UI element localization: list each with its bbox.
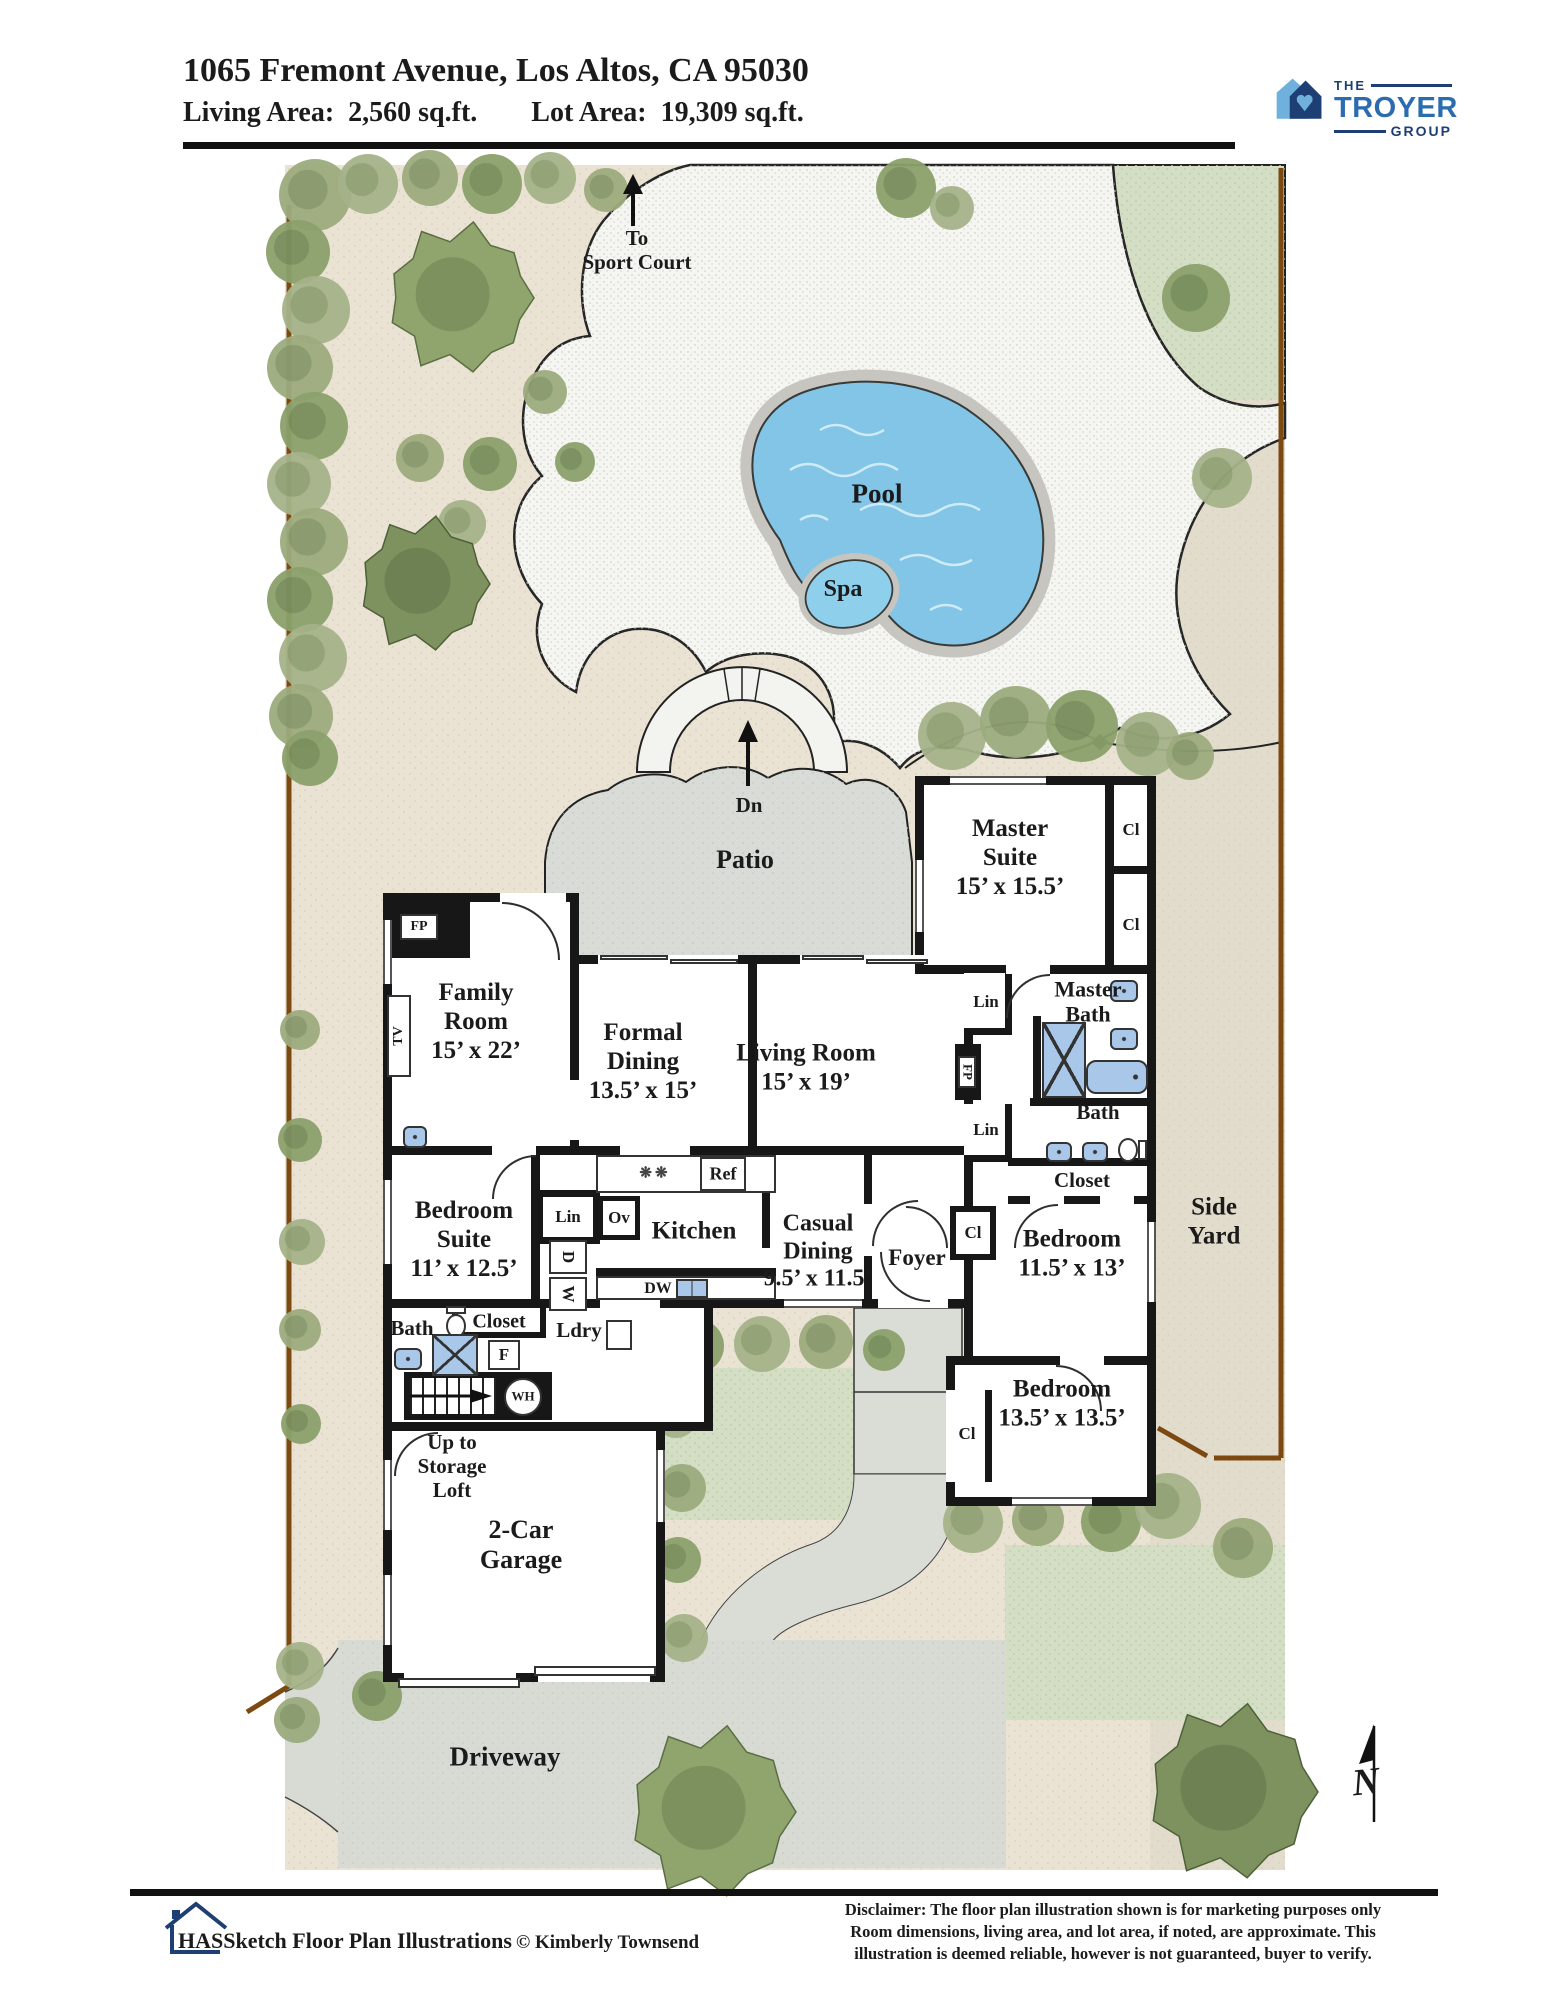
living-room-label: Living Room 15’ x 19’ <box>736 1039 876 1097</box>
logo-troyer: TROYER <box>1334 93 1452 123</box>
fireplace-label: FP <box>960 1064 975 1080</box>
closet-label: Cl <box>1123 915 1140 935</box>
linen-label: Lin <box>973 992 999 1012</box>
side-yard-label: Side Yard <box>1188 1193 1241 1251</box>
sink-icon <box>1046 1142 1072 1162</box>
oven-label: Ov <box>608 1208 630 1228</box>
dryer-label: D <box>558 1251 578 1263</box>
window <box>1012 1497 1092 1506</box>
down-label: Dn <box>736 793 763 817</box>
bedroom-2-label: Bedroom 13.5’ x 13.5’ <box>998 1375 1125 1433</box>
logo-group: GROUP <box>1391 123 1452 139</box>
washer-label: W <box>558 1286 578 1303</box>
linen-label: Lin <box>973 1120 999 1140</box>
header-rule <box>183 142 1235 149</box>
footer-copyright: © Kimberly Townsend <box>516 1932 699 1954</box>
dishwasher-label: DW <box>644 1280 672 1298</box>
toilet-tank <box>1138 1140 1147 1160</box>
bedroom-1-label: Bedroom 11.5’ x 13’ <box>1018 1225 1125 1283</box>
bath-label: Bath <box>1076 1100 1119 1124</box>
foyer-label: Foyer <box>888 1245 945 1271</box>
patio-down-arrow-icon <box>734 718 762 788</box>
lot-area-label: Lot Area: <box>531 97 646 128</box>
kitchen-counter <box>596 1155 776 1193</box>
sink-icon <box>394 1348 422 1370</box>
window <box>383 1180 392 1264</box>
casual-dining-label: Casual Dining 9.5’ x 11.5’ <box>764 1211 873 1294</box>
door-opening <box>600 1299 660 1308</box>
storage-loft-label: Up to Storage Loft <box>418 1430 487 1502</box>
sport-court-label: To Sport Court <box>582 226 691 274</box>
slider-panel <box>600 955 668 960</box>
window <box>950 776 1046 785</box>
garage-label: 2-Car Garage <box>480 1515 562 1575</box>
closet-label: Closet <box>472 1311 525 1334</box>
stove-burners-icon: ❋❋ <box>639 1165 670 1182</box>
closet-strip-label: Closet <box>1054 1168 1110 1192</box>
window <box>383 1460 392 1530</box>
slider-panel <box>802 955 864 960</box>
living-area-label: Living Area: <box>183 97 334 128</box>
freezer-label: F <box>499 1345 509 1365</box>
shower-icon <box>432 1334 478 1376</box>
door-opening <box>500 893 566 902</box>
linen-label: Lin <box>555 1207 581 1227</box>
window <box>784 1299 862 1308</box>
dishwasher-icon <box>676 1279 708 1298</box>
bathtub-icon <box>1086 1060 1148 1094</box>
troyer-house-icon <box>1272 66 1328 136</box>
window <box>383 1575 392 1645</box>
door-opening <box>1060 1356 1104 1365</box>
driveway-label: Driveway <box>450 1741 561 1772</box>
shower-icon <box>1042 1022 1086 1098</box>
toilet-icon <box>1118 1138 1138 1162</box>
page-title: 1065 Fremont Avenue, Los Altos, CA 95030 <box>183 52 809 90</box>
closet-label: Cl <box>1123 820 1140 840</box>
north-label: N <box>1350 1760 1382 1806</box>
refrigerator-label: Ref <box>710 1164 737 1185</box>
troyer-group-logo: THE TROYER GROUP <box>1272 66 1452 150</box>
door-opening <box>570 1080 579 1140</box>
hearth-fixture <box>403 1126 427 1148</box>
sink-icon <box>1082 1142 1108 1162</box>
slider-panel <box>670 959 738 964</box>
footer-brand: HASSketch Floor Plan Illustrations <box>178 1928 512 1954</box>
closet-label: Cl <box>965 1223 982 1243</box>
door-opening <box>1100 1196 1134 1204</box>
sport-court-arrow-icon <box>620 172 646 228</box>
window <box>915 860 924 932</box>
closet-label: Cl <box>959 1424 976 1444</box>
bedroom-suite-label: Bedroom Suite 11’ x 12.5’ <box>410 1197 517 1283</box>
window <box>656 1450 665 1522</box>
master-closets <box>1105 776 1156 974</box>
water-heater-label: WH <box>511 1390 534 1405</box>
garage-door-panel <box>398 1678 520 1688</box>
area-summary: Living Area:2,560 sq.ft.Lot Area:19,309 … <box>183 97 804 129</box>
wall <box>1033 1016 1041 1100</box>
wall <box>1110 866 1152 874</box>
laundry-label: Ldry <box>556 1318 602 1342</box>
wall <box>596 1268 776 1276</box>
footer-disclaimer: Disclaimer: The floor plan illustration … <box>830 1899 1396 1964</box>
toilet-tank <box>446 1306 466 1314</box>
laundry-sink <box>606 1320 632 1350</box>
lot-area-value: 19,309 sq.ft. <box>661 97 804 128</box>
logo-the: THE <box>1334 78 1366 93</box>
door-opening <box>492 1146 536 1155</box>
formal-dining-label: Formal Dining 13.5’ x 15’ <box>589 1019 698 1105</box>
pool-label: Pool <box>852 478 903 509</box>
tv-label: TV <box>391 1026 407 1045</box>
family-room-label: Family Room 15’ x 22’ <box>431 979 521 1065</box>
garage-door-panel <box>534 1666 656 1676</box>
patio-label: Patio <box>716 845 774 875</box>
front-door-opening <box>878 1299 948 1308</box>
stairs-arrow-icon <box>408 1388 494 1404</box>
bath-label: Bath <box>390 1316 433 1340</box>
living-area-value: 2,560 sq.ft. <box>348 97 477 128</box>
door-opening <box>1006 965 1050 974</box>
kitchen-label: Kitchen <box>652 1218 737 1247</box>
door-opening <box>1030 1196 1064 1204</box>
window <box>1147 1222 1156 1302</box>
spa-label: Spa <box>824 576 863 604</box>
slider-panel <box>866 959 928 964</box>
fireplace-label: FP <box>410 919 427 935</box>
door-opening <box>620 1146 690 1155</box>
wall <box>864 1146 872 1204</box>
master-suite-label: Master Suite 15’ x 15.5’ <box>956 815 1065 901</box>
sink-icon <box>1110 1028 1138 1050</box>
footer-rule <box>130 1889 1438 1896</box>
logo-rule-top <box>1371 84 1452 87</box>
window <box>383 920 392 984</box>
floor-plan-page: 1065 Fremont Avenue, Los Altos, CA 95030… <box>0 0 1564 2000</box>
logo-rule-bottom <box>1334 130 1386 133</box>
master-bath-label: Master Bath <box>1054 977 1121 1028</box>
